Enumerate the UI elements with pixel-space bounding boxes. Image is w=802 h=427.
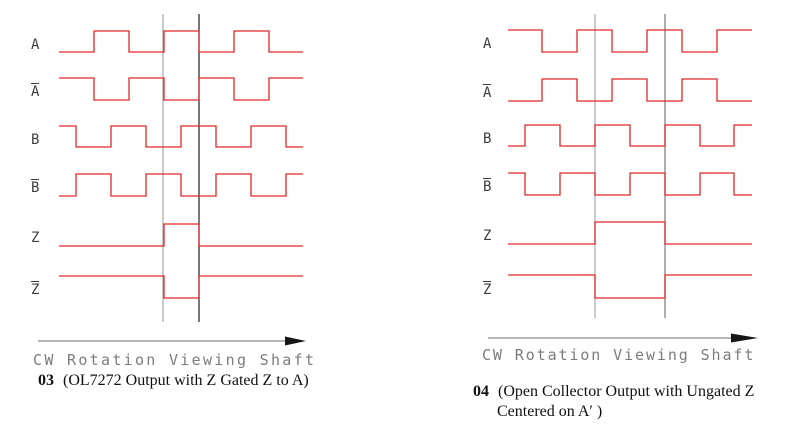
signal-z-bar-waveform (508, 275, 752, 298)
rotation-arrow-head-icon (731, 334, 758, 343)
signal-b-bar-waveform (508, 173, 752, 195)
signal-b-waveform (508, 125, 752, 146)
signal-a-bar-waveform (508, 79, 752, 101)
signal-label-z: Z (31, 229, 39, 247)
signal-label-b-bar: B (31, 179, 39, 197)
signal-label-b-bar: B (483, 178, 491, 196)
figure-caption-text-line2: Centered on A′ ) (497, 402, 754, 422)
figure-number: 03 (38, 372, 54, 389)
figure-caption-text: (Open Collector Output with Ungated Z (498, 383, 754, 400)
cw-rotation-axis-label: CW Rotation Viewing Shaft (33, 351, 316, 369)
signal-label-a: A (483, 35, 491, 53)
signal-label-a-bar: A (31, 83, 39, 101)
signal-a-waveform (508, 30, 752, 52)
figure-caption-text: (OL7272 Output with Z Gated Z to A) (63, 372, 309, 389)
signal-z-waveform (508, 222, 752, 244)
signal-a-bar-waveform (59, 78, 303, 100)
signal-label-a-bar: A (483, 84, 491, 102)
signal-label-b: B (31, 131, 39, 149)
signal-z-waveform (59, 224, 303, 246)
signal-label-z-bar: Z (483, 281, 491, 299)
signal-b-waveform (59, 126, 303, 147)
signal-b-bar-waveform (59, 174, 303, 196)
signal-a-waveform (59, 31, 303, 52)
signal-label-b: B (483, 130, 491, 148)
figure-caption: 03(OL7272 Output with Z Gated Z to A) (38, 371, 309, 391)
signal-label-z-bar: Z (31, 281, 39, 299)
signal-label-a: A (31, 36, 39, 54)
timing-diagram-stage: CW Rotation Viewing Shaft 03(OL7272 Outp… (0, 0, 802, 427)
signal-z-bar-waveform (59, 276, 303, 298)
rotation-arrow-head-icon (285, 337, 306, 346)
figure-caption: 04(Open Collector Output with Ungated Z … (473, 382, 754, 422)
signal-label-z: Z (483, 227, 491, 245)
figure-number: 04 (473, 383, 489, 400)
cw-rotation-axis-label: CW Rotation Viewing Shaft (482, 346, 755, 364)
